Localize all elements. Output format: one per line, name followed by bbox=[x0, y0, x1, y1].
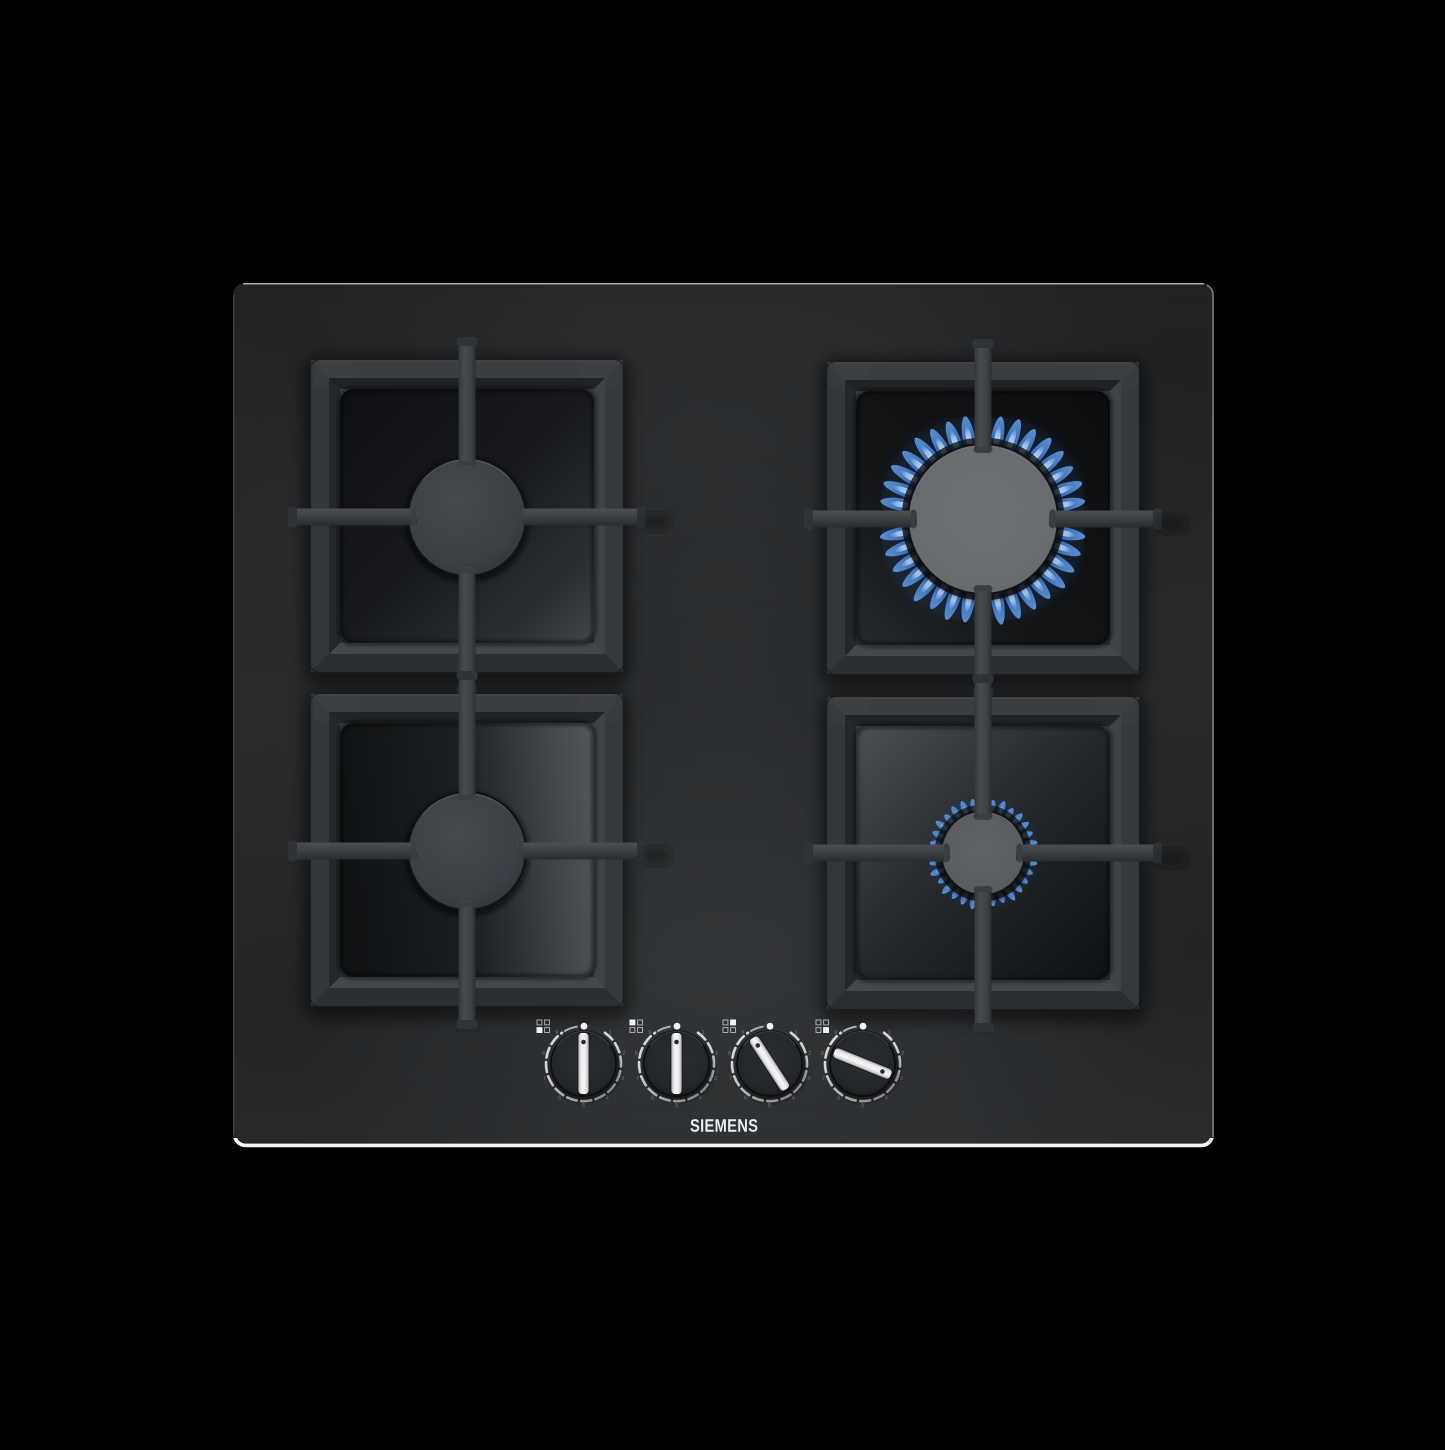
svg-text:6: 6 bbox=[558, 1096, 561, 1102]
svg-text:4: 4 bbox=[885, 1096, 888, 1102]
svg-text:1: 1 bbox=[609, 1030, 612, 1036]
svg-text:2: 2 bbox=[808, 1051, 811, 1057]
svg-text:3: 3 bbox=[621, 1076, 624, 1082]
svg-text:7: 7 bbox=[543, 1076, 546, 1082]
svg-text:7: 7 bbox=[636, 1076, 639, 1082]
svg-text:6: 6 bbox=[744, 1096, 747, 1102]
svg-text:6: 6 bbox=[837, 1096, 840, 1102]
svg-text:5: 5 bbox=[675, 1103, 678, 1109]
svg-text:9: 9 bbox=[555, 1030, 558, 1036]
svg-text:3: 3 bbox=[807, 1076, 810, 1082]
svg-text:1: 1 bbox=[795, 1030, 798, 1036]
svg-text:4: 4 bbox=[699, 1096, 702, 1102]
svg-text:9: 9 bbox=[648, 1030, 651, 1036]
svg-text:7: 7 bbox=[729, 1076, 732, 1082]
svg-text:5: 5 bbox=[768, 1103, 771, 1109]
svg-text:5: 5 bbox=[861, 1103, 864, 1109]
svg-text:2: 2 bbox=[622, 1051, 625, 1057]
svg-text:5: 5 bbox=[582, 1103, 585, 1109]
svg-text:9: 9 bbox=[741, 1030, 744, 1036]
svg-text:3: 3 bbox=[900, 1076, 903, 1082]
svg-text:4: 4 bbox=[792, 1096, 795, 1102]
svg-text:1: 1 bbox=[702, 1030, 705, 1036]
svg-text:8: 8 bbox=[728, 1051, 731, 1057]
svg-text:8: 8 bbox=[635, 1051, 638, 1057]
svg-text:2: 2 bbox=[715, 1051, 718, 1057]
svg-text:7: 7 bbox=[822, 1076, 825, 1082]
svg-text:8: 8 bbox=[821, 1051, 824, 1057]
svg-text:1: 1 bbox=[888, 1030, 891, 1036]
svg-text:2: 2 bbox=[901, 1051, 904, 1057]
svg-text:4: 4 bbox=[606, 1096, 609, 1102]
svg-text:6: 6 bbox=[651, 1096, 654, 1102]
svg-text:3: 3 bbox=[714, 1076, 717, 1082]
svg-text:8: 8 bbox=[542, 1051, 545, 1057]
svg-text:9: 9 bbox=[834, 1030, 837, 1036]
